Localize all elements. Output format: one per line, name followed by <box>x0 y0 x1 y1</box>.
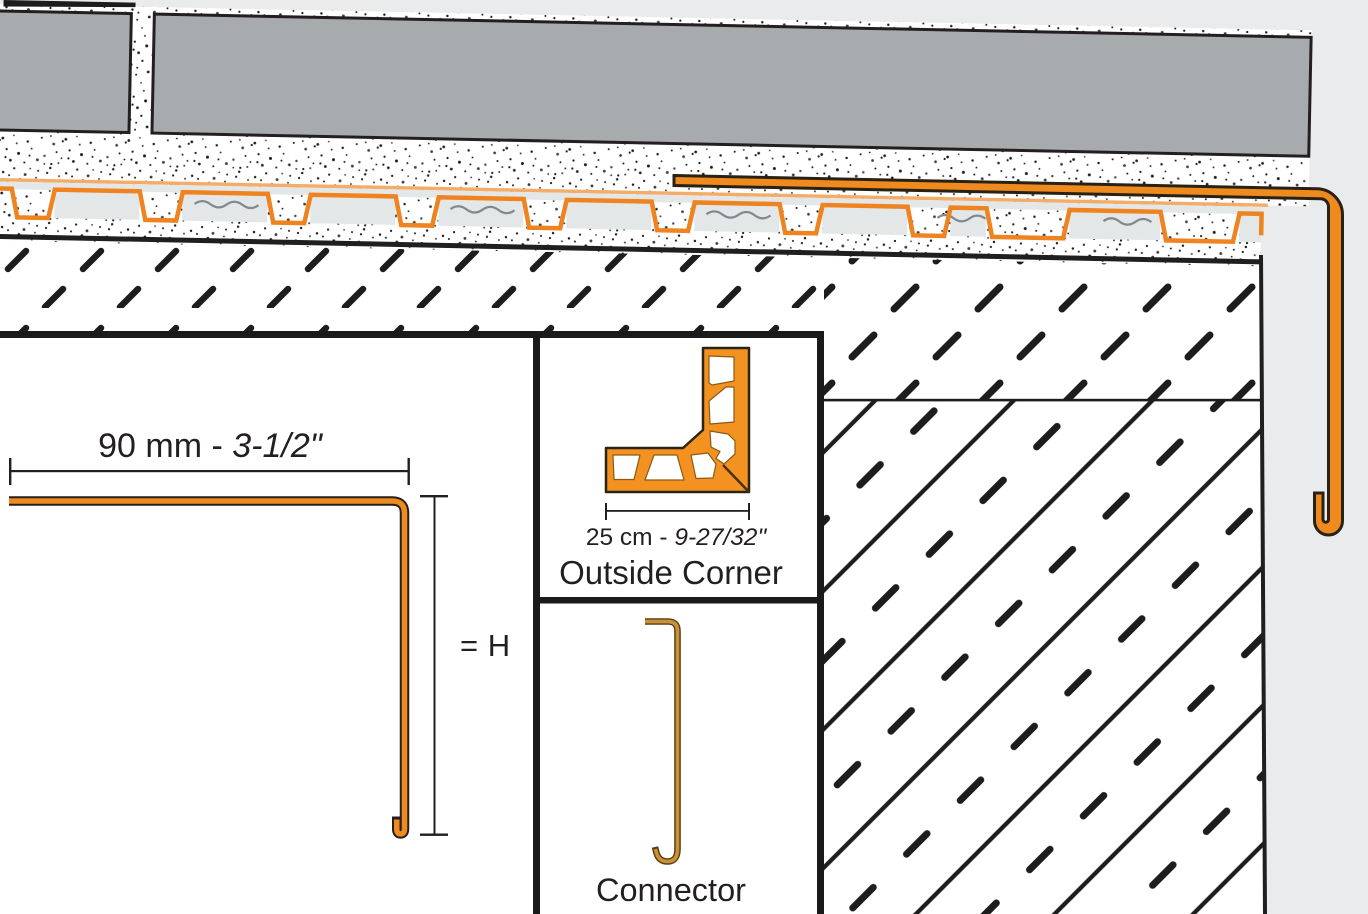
svg-text:90 mm - 3-1/2": 90 mm - 3-1/2" <box>98 427 324 465</box>
svg-text:Outside Corner: Outside Corner <box>559 554 783 591</box>
svg-text:25 cm - 9-27/32": 25 cm - 9-27/32" <box>586 524 768 551</box>
svg-text:Connector: Connector <box>596 872 746 908</box>
svg-text:= H: = H <box>460 628 511 663</box>
